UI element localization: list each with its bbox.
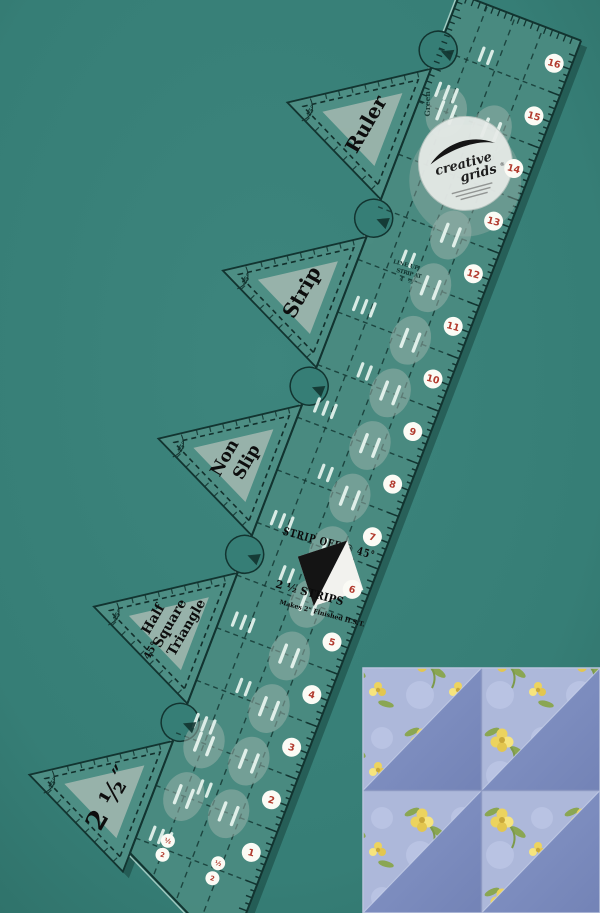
quilt-block-photo: [363, 668, 600, 913]
edge-label-green: Green: [423, 91, 432, 117]
scene-canvas: 45° 45° 45° 45° 45° 2 ½˝ 45° Half Square…: [0, 0, 600, 913]
product-photo: 45° 45° 45° 45° 45° 2 ½˝ 45° Half Square…: [0, 0, 600, 913]
